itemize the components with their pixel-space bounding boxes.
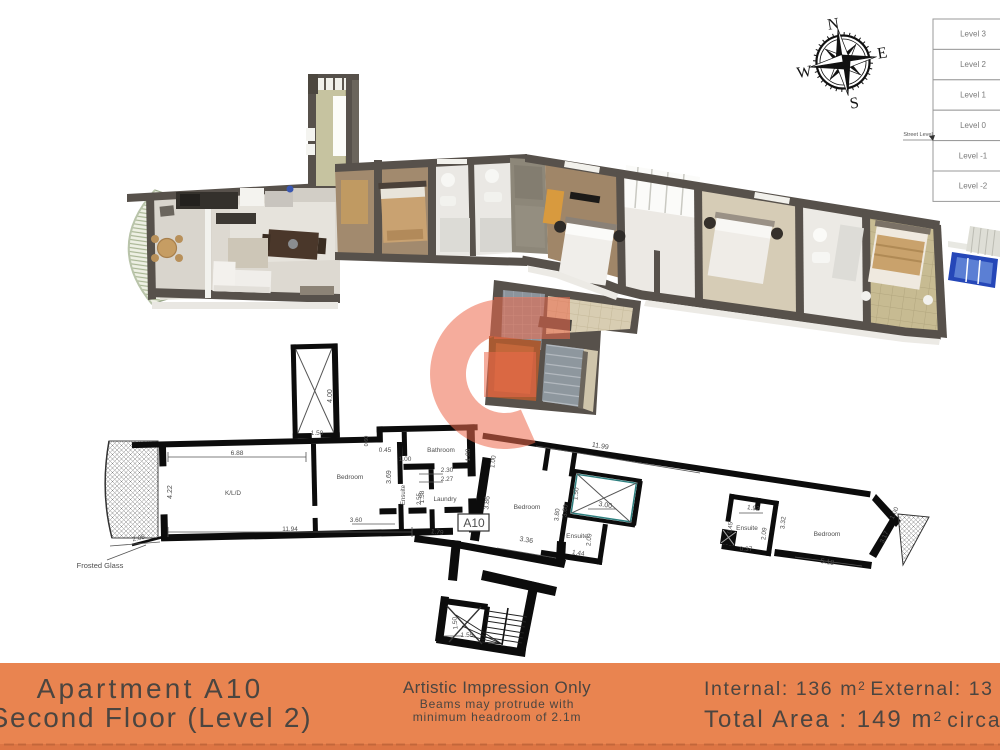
svg-text:2.27: 2.27: [441, 476, 454, 483]
svg-text:Level -2: Level -2: [959, 182, 988, 191]
svg-text:Level 2: Level 2: [960, 60, 986, 69]
svg-text:6.88: 6.88: [231, 450, 244, 457]
svg-text:Frosted Glass: Frosted Glass: [77, 561, 124, 570]
svg-text:3.69: 3.69: [386, 470, 393, 484]
svg-text:Bathroom: Bathroom: [427, 447, 455, 454]
svg-text:0.37: 0.37: [740, 546, 753, 553]
svg-text:0.45: 0.45: [379, 447, 392, 454]
svg-text:2.09: 2.09: [760, 527, 768, 541]
svg-text:1.55: 1.55: [461, 632, 474, 639]
svg-text:Level -1: Level -1: [959, 151, 988, 160]
svg-text:Beams may protrude with: Beams may protrude with: [420, 697, 574, 711]
svg-text:3.80: 3.80: [553, 508, 561, 522]
svg-text:Second Floor (Level 2): Second Floor (Level 2): [0, 702, 312, 733]
svg-text:Ensuite: Ensuite: [736, 525, 758, 532]
svg-text:K/L/D: K/L/D: [225, 490, 241, 497]
svg-text:1.88: 1.88: [465, 448, 472, 461]
svg-text:Street Level: Street Level: [903, 132, 932, 138]
svg-text:Level 3: Level 3: [960, 30, 986, 39]
svg-text:4.00: 4.00: [327, 389, 334, 403]
svg-text:4.22: 4.22: [167, 485, 174, 499]
svg-text:1.50: 1.50: [311, 430, 324, 437]
svg-text:3.32: 3.32: [779, 516, 787, 530]
svg-text:1.50: 1.50: [451, 616, 459, 630]
svg-text:Laundry: Laundry: [433, 496, 457, 503]
svg-text:1.00: 1.00: [399, 456, 412, 463]
svg-text:3.60: 3.60: [561, 504, 569, 518]
svg-text:minimum headroom of 2.1m: minimum headroom of 2.1m: [413, 710, 582, 724]
svg-text:Ensuite: Ensuite: [566, 533, 588, 540]
svg-text:0.60: 0.60: [364, 436, 370, 447]
svg-text:3.86: 3.86: [483, 496, 491, 510]
svg-text:1.50: 1.50: [572, 487, 580, 501]
svg-text:Level 1: Level 1: [960, 91, 986, 100]
svg-text:Artistic Impression Only: Artistic Impression Only: [403, 678, 591, 697]
svg-text:2.30: 2.30: [441, 467, 454, 474]
svg-text:11.94: 11.94: [282, 526, 298, 533]
svg-text:Bedroom: Bedroom: [814, 531, 841, 538]
svg-text:Bedroom: Bedroom: [514, 504, 541, 511]
svg-text:A10: A10: [463, 516, 485, 530]
svg-text:2.09: 2.09: [585, 533, 593, 547]
svg-text:3.60: 3.60: [350, 517, 363, 524]
svg-text:0.45: 0.45: [727, 521, 734, 534]
svg-text:1.58: 1.58: [419, 490, 426, 503]
svg-text:Bedroom: Bedroom: [337, 474, 364, 481]
svg-text:Total Area : 149 m2circa: Total Area : 149 m2circa: [704, 706, 1000, 733]
svg-text:Internal: 136 m2External: 13 m: Internal: 136 m2External: 13 m2: [704, 678, 1000, 700]
svg-text:Ensuite: Ensuite: [401, 484, 407, 505]
svg-text:Apartment A10: Apartment A10: [37, 673, 264, 704]
svg-text:Level 0: Level 0: [960, 121, 986, 130]
